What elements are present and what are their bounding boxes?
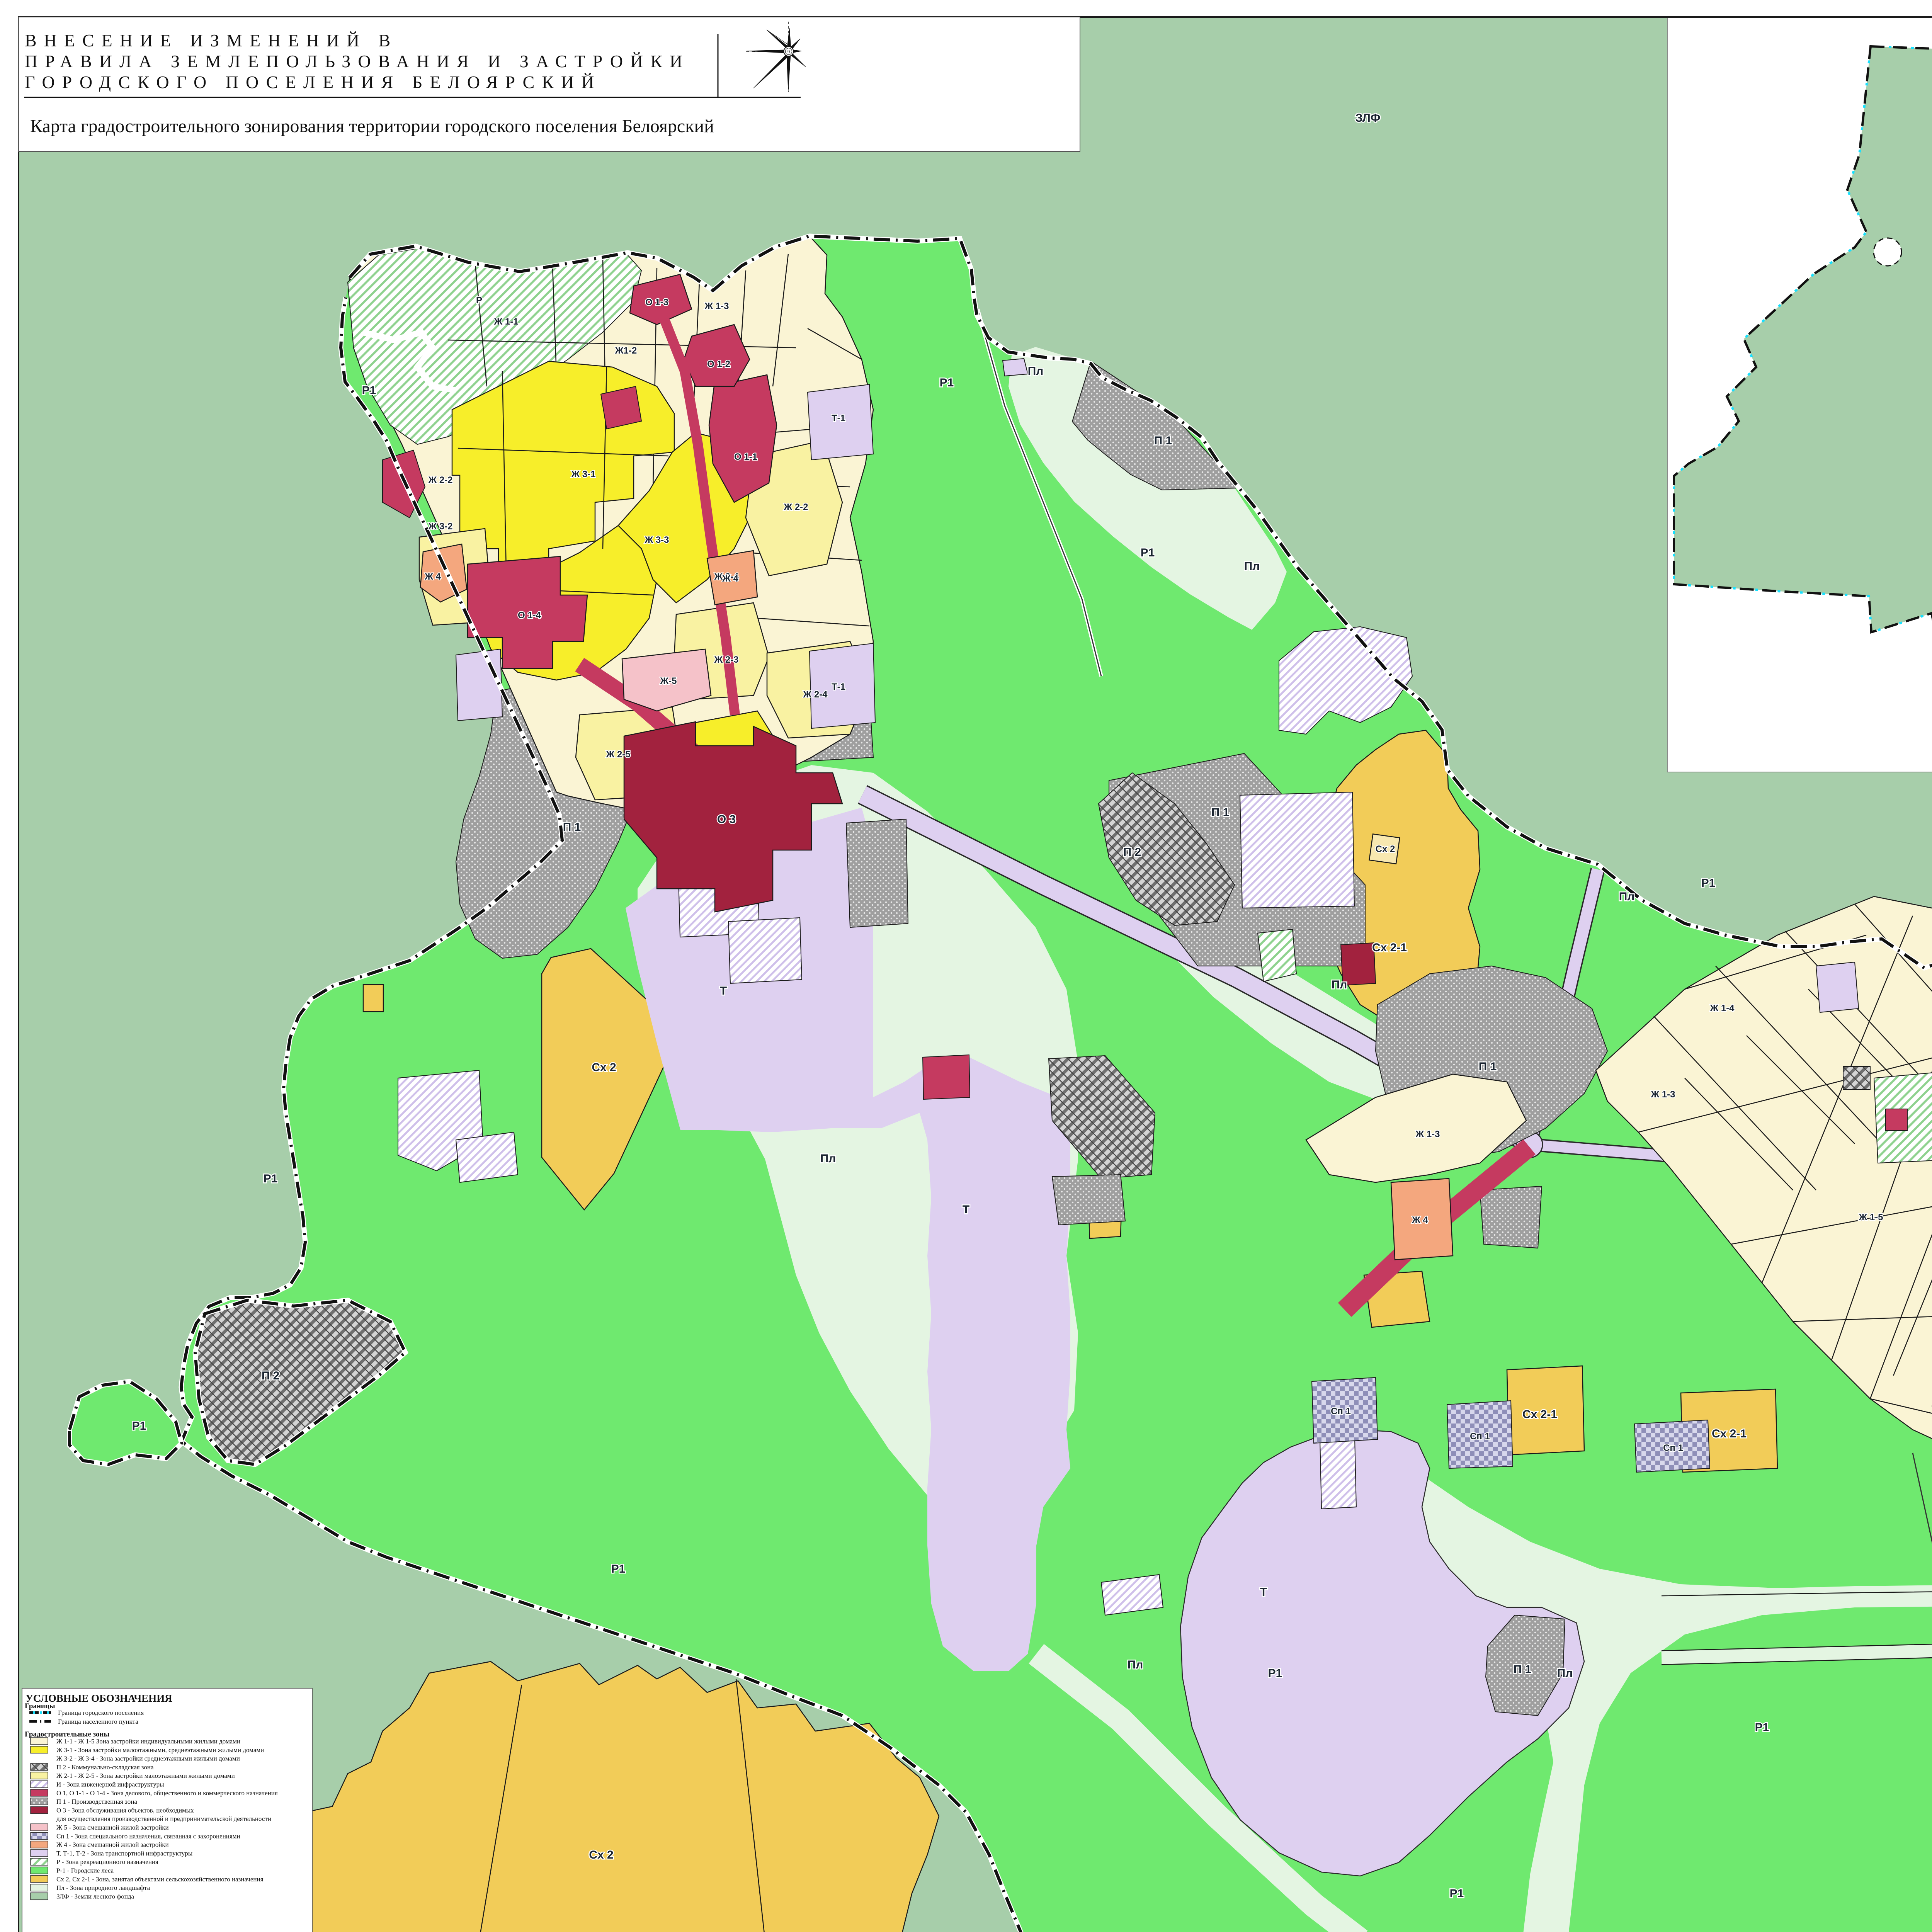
svg-text:О 1-3: О 1-3	[645, 297, 668, 308]
svg-text:Ж 1-3: Ж 1-3	[1415, 1129, 1440, 1139]
svg-text:Ж 2-2: Ж 2-2	[428, 475, 452, 485]
svg-text:Пл: Пл	[1244, 560, 1260, 573]
svg-text:Ж 4: Ж 4	[1412, 1215, 1428, 1225]
svg-text:Сх 2: Сх 2	[589, 1849, 613, 1861]
svg-text:О 3 - Зона обслуживания объект: О 3 - Зона обслуживания объектов, необхо…	[56, 1806, 194, 1814]
svg-text:И - Зона инженерной инфраструк: И - Зона инженерной инфраструктуры	[56, 1781, 164, 1788]
svg-text:Ж 5 - Зона смешанной жилой за: Ж 5 - Зона смешанной жилой застройки	[56, 1824, 169, 1831]
svg-text:О 1-4: О 1-4	[518, 610, 541, 621]
svg-text:П 1: П 1	[1479, 1060, 1497, 1073]
svg-text:Т, Т-1, Т-2 - Зона транспортно: Т, Т-1, Т-2 - Зона транспортной инфрастр…	[56, 1850, 193, 1857]
svg-text:ПРАВИЛА ЗЕМЛЕПОЛЬЗОВАНИЯ И ЗАС: ПРАВИЛА ЗЕМЛЕПОЛЬЗОВАНИЯ И ЗАСТРОЙКИ	[25, 51, 690, 71]
svg-text:Р1: Р1	[1141, 546, 1155, 559]
svg-text:Сх 2-1: Сх 2-1	[1712, 1427, 1747, 1440]
svg-text:Сх 2-1: Сх 2-1	[1372, 941, 1407, 954]
svg-text:Р-1 - Городские леса: Р-1 - Городские леса	[56, 1867, 114, 1874]
svg-text:Р1: Р1	[940, 376, 954, 389]
svg-text:Р1: Р1	[1268, 1667, 1282, 1680]
svg-text:Ж 3-1: Ж 3-1	[571, 469, 595, 480]
svg-text:П 2: П 2	[262, 1369, 280, 1382]
svg-text:Ж 4 - Зона смешанной жилой зас: Ж 4 - Зона смешанной жилой застройки	[56, 1841, 169, 1849]
svg-text:О 1-2: О 1-2	[707, 359, 730, 369]
svg-text:для осуществления производстве: для осуществления производственной и пре…	[56, 1815, 271, 1823]
svg-text:Р: Р	[476, 295, 482, 306]
svg-text:Градостроительные зоны: Градостроительные зоны	[25, 1730, 109, 1738]
svg-text:Сх 2, Сх 2-1 - Зона, занятая о: Сх 2, Сх 2-1 - Зона, занятая объектами с…	[56, 1876, 264, 1883]
svg-text:Ж 1-1 - Ж 1-5 Зона застройки: Ж 1-1 - Ж 1-5 Зона застройки индивидуаль…	[56, 1738, 240, 1745]
svg-text:Ж 1-3: Ж 1-3	[1650, 1089, 1675, 1100]
svg-text:Т: Т	[720, 985, 727, 997]
svg-text:Сп 1 - Зона специального назна: Сп 1 - Зона специального назначения, свя…	[56, 1832, 240, 1840]
svg-text:Т: Т	[1260, 1586, 1267, 1599]
svg-text:П 2 - Коммунально-складская зо: П 2 - Коммунально-складская зона	[56, 1764, 154, 1771]
svg-text:П 1: П 1	[1514, 1663, 1532, 1676]
svg-text:О 1-1: О 1-1	[734, 452, 757, 462]
svg-text:Границы: Границы	[25, 1702, 55, 1710]
svg-text:Ж 2-5: Ж 2-5	[605, 749, 630, 760]
svg-text:Р1: Р1	[1701, 877, 1716, 889]
svg-text:Ж 2-1 - Ж 2-5 - Зона застройки: Ж 2-1 - Ж 2-5 - Зона застройки малоэтажн…	[56, 1772, 235, 1779]
svg-text:О 3: О 3	[717, 813, 736, 826]
svg-text:Сп 1: Сп 1	[1663, 1443, 1683, 1453]
svg-text:Карта градостроительного зонир: Карта градостроительного зонирования тер…	[30, 116, 714, 136]
svg-text:Сп 1: Сп 1	[1470, 1431, 1490, 1442]
svg-text:Пл: Пл	[1028, 365, 1044, 378]
svg-text:Ж 3-3: Ж 3-3	[644, 535, 669, 545]
svg-text:О 1, О 1-1 - О 1-4 - Зона дело: О 1, О 1-1 - О 1-4 - Зона делового, обще…	[56, 1789, 278, 1797]
svg-text:Т-1: Т-1	[832, 682, 845, 692]
svg-text:9: 9	[787, 49, 790, 54]
svg-text:Р - Зона рекреационного назнач: Р - Зона рекреационного назначения	[56, 1858, 158, 1866]
svg-text:Ж 1-4: Ж 1-4	[1709, 1003, 1735, 1014]
svg-text:П 1: П 1	[1211, 806, 1230, 819]
svg-text:ЗЛФ: ЗЛФ	[1355, 112, 1381, 124]
svg-text:Пл: Пл	[1557, 1667, 1573, 1680]
svg-text:Ж 1-1: Ж 1-1	[493, 316, 518, 327]
svg-text:Ж 2-4: Ж 2-4	[803, 689, 828, 700]
svg-text:П 1: П 1	[1154, 434, 1172, 447]
svg-text:Р1: Р1	[1755, 1721, 1769, 1734]
svg-text:Ж 1-5: Ж 1-5	[1858, 1212, 1883, 1223]
svg-text:Сх 2: Сх 2	[592, 1061, 616, 1074]
svg-text:П 1: П 1	[563, 821, 581, 833]
svg-text:Пл: Пл	[1619, 890, 1635, 903]
svg-text:Р1: Р1	[1450, 1887, 1464, 1900]
svg-text:Ж-5: Ж-5	[660, 676, 677, 686]
svg-text:Ж 2-3: Ж 2-3	[714, 655, 738, 665]
svg-text:Пл: Пл	[1332, 978, 1347, 991]
svg-text:Ж 1-3: Ж 1-3	[704, 301, 729, 311]
svg-text:ЗЛФ - Земли лесного фонда: ЗЛФ - Земли лесного фонда	[56, 1893, 134, 1900]
svg-text:Т: Т	[963, 1203, 969, 1216]
svg-text:Р1: Р1	[132, 1420, 146, 1432]
svg-text:Ж1-2: Ж1-2	[615, 345, 637, 356]
svg-text:Пл - Зона природного ландшафта: Пл - Зона природного ландшафта	[56, 1884, 150, 1891]
svg-text:Р1: Р1	[362, 384, 376, 397]
svg-text:ВНЕСЕНИЕ ИЗМЕНЕНИЙ В: ВНЕСЕНИЕ ИЗМЕНЕНИЙ В	[25, 31, 398, 50]
svg-text:Пл: Пл	[1128, 1658, 1143, 1671]
svg-text:Сх 2-1: Сх 2-1	[1522, 1408, 1557, 1421]
svg-text:Ж 3-2: Ж 3-2	[428, 521, 452, 532]
svg-text:Ж 3-1 - Зона застройки малоэта: Ж 3-1 - Зона застройки малоэтажными, сре…	[56, 1746, 264, 1753]
svg-text:Р1: Р1	[264, 1172, 278, 1185]
svg-text:П 1 - Производственная зона: П 1 - Производственная зона	[56, 1798, 137, 1805]
svg-text:ГОРОДСКОГО ПОСЕЛЕНИЯ БЕЛОЯРСКИ: ГОРОДСКОГО ПОСЕЛЕНИЯ БЕЛОЯРСКИЙ	[25, 72, 601, 92]
svg-text:Ж 2-2: Ж 2-2	[783, 502, 808, 512]
svg-text:П 2: П 2	[1123, 846, 1141, 859]
svg-text:Р1: Р1	[611, 1563, 626, 1575]
svg-text:Сх 2: Сх 2	[1376, 844, 1395, 854]
svg-text:Граница городского поселения: Граница городского поселения	[58, 1709, 144, 1716]
svg-text:Ж 4: Ж 4	[424, 571, 441, 582]
svg-text:Сп 1: Сп 1	[1331, 1406, 1351, 1417]
svg-text:Ж 4: Ж 4	[722, 573, 738, 584]
svg-text:Пл: Пл	[820, 1152, 836, 1165]
svg-text:Т-1: Т-1	[832, 413, 845, 423]
svg-text:Ж 3-2 - Ж 3-4 - Зона застройки: Ж 3-2 - Ж 3-4 - Зона застройки среднеэта…	[56, 1755, 240, 1762]
svg-text:Граница населенного пункта: Граница населенного пункта	[58, 1718, 138, 1725]
